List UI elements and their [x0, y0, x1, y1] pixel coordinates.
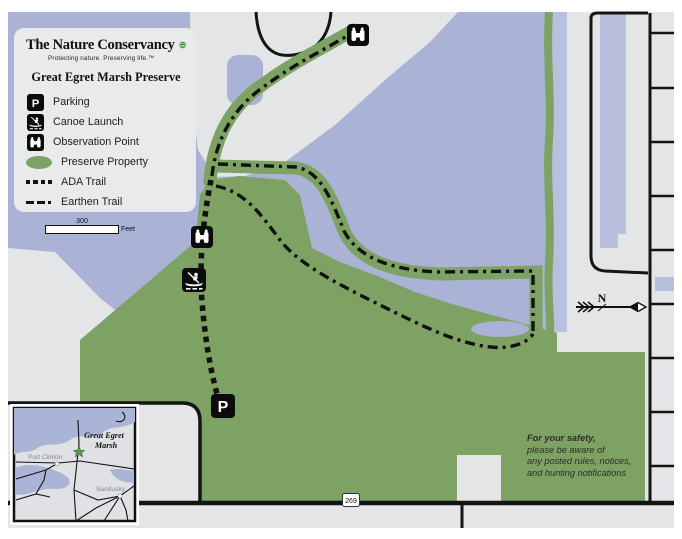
inset-preserve-label-line1: Great Egret [84, 431, 125, 440]
parking-icon: P [26, 93, 44, 111]
observation-point-marker-west [191, 226, 213, 248]
globe-logo-icon [179, 36, 186, 54]
inset-city-dot [55, 462, 59, 466]
route-shield-number: 269 [345, 498, 357, 505]
legend-row-preserve-property: Preserve Property [26, 152, 186, 172]
route-shield: 269 [343, 494, 360, 507]
legend-row-ada-trail: ADA Trail [26, 172, 186, 192]
parking-letter: P [218, 399, 229, 416]
scale-unit: Feet [121, 226, 135, 233]
inset-preserve-label-line2: Marsh [94, 441, 118, 450]
safety-line: please be aware of [527, 445, 605, 455]
inset-city-label-port-clinton: Port Clinton [28, 454, 63, 461]
canal-water-tail [600, 234, 618, 248]
south-pond [471, 321, 529, 337]
small-water-patch [655, 277, 674, 291]
scale-value: 300 [45, 218, 119, 225]
inset-city-label-sandusky: Sandusky [96, 486, 126, 493]
earthen-trail-sample [26, 201, 52, 204]
legend-label: Observation Point [53, 136, 139, 148]
legend-row-parking: P Parking [26, 92, 186, 112]
svg-text:P: P [31, 97, 39, 109]
safety-line: any posted rules, notices, [527, 456, 631, 466]
east-water-strip [550, 12, 567, 332]
org-name: The Nature Conservancy [26, 37, 175, 54]
preserve-title: Great Egret Marsh Preserve [26, 70, 186, 85]
legend-label: Preserve Property [61, 156, 148, 168]
north-label: N [598, 291, 607, 305]
preserve-strip-east [548, 12, 550, 333]
legend-row-canoe-launch: Canoe Launch [26, 112, 186, 132]
org-tagline: Protecting nature. Preserving life.™ [48, 55, 186, 62]
safety-notice: For your safety, please be aware of any … [527, 433, 652, 479]
canal-water [600, 14, 626, 234]
ada-trail-sample [26, 180, 52, 185]
canoe-launch-marker [182, 268, 206, 292]
parking-marker: P [211, 394, 235, 418]
map-page: P N N. Buck Rd. 269 [0, 0, 682, 539]
legend-label: Parking [53, 96, 90, 108]
observation-point-icon [26, 133, 44, 151]
safety-heading: For your safety, [527, 433, 596, 443]
safety-line: and hunting notifications [527, 468, 626, 478]
legend-row-earthen-trail: Earthen Trail [26, 192, 186, 212]
inset-city-dot [118, 494, 122, 498]
legend-card: The Nature Conservancy Protecting nature… [14, 28, 196, 212]
canoe-launch-icon [26, 113, 44, 131]
legend-label: Earthen Trail [61, 196, 122, 208]
legend-label: Canoe Launch [53, 116, 123, 128]
observation-point-marker-north [347, 24, 369, 46]
legend-items: P Parking Canoe Launch [26, 92, 186, 212]
org-logo: The Nature Conservancy [26, 36, 186, 54]
scale-bar: 300 Feet [45, 218, 155, 234]
preserve-property-swatch [26, 156, 52, 169]
scale-bar-box [45, 225, 119, 234]
legend-label: ADA Trail [61, 176, 106, 188]
legend-row-observation-point: Observation Point [26, 132, 186, 152]
inholding-parcel [457, 455, 501, 502]
inset-locator-map: Great Egret Marsh Port Clinton Sandusky [10, 404, 139, 525]
